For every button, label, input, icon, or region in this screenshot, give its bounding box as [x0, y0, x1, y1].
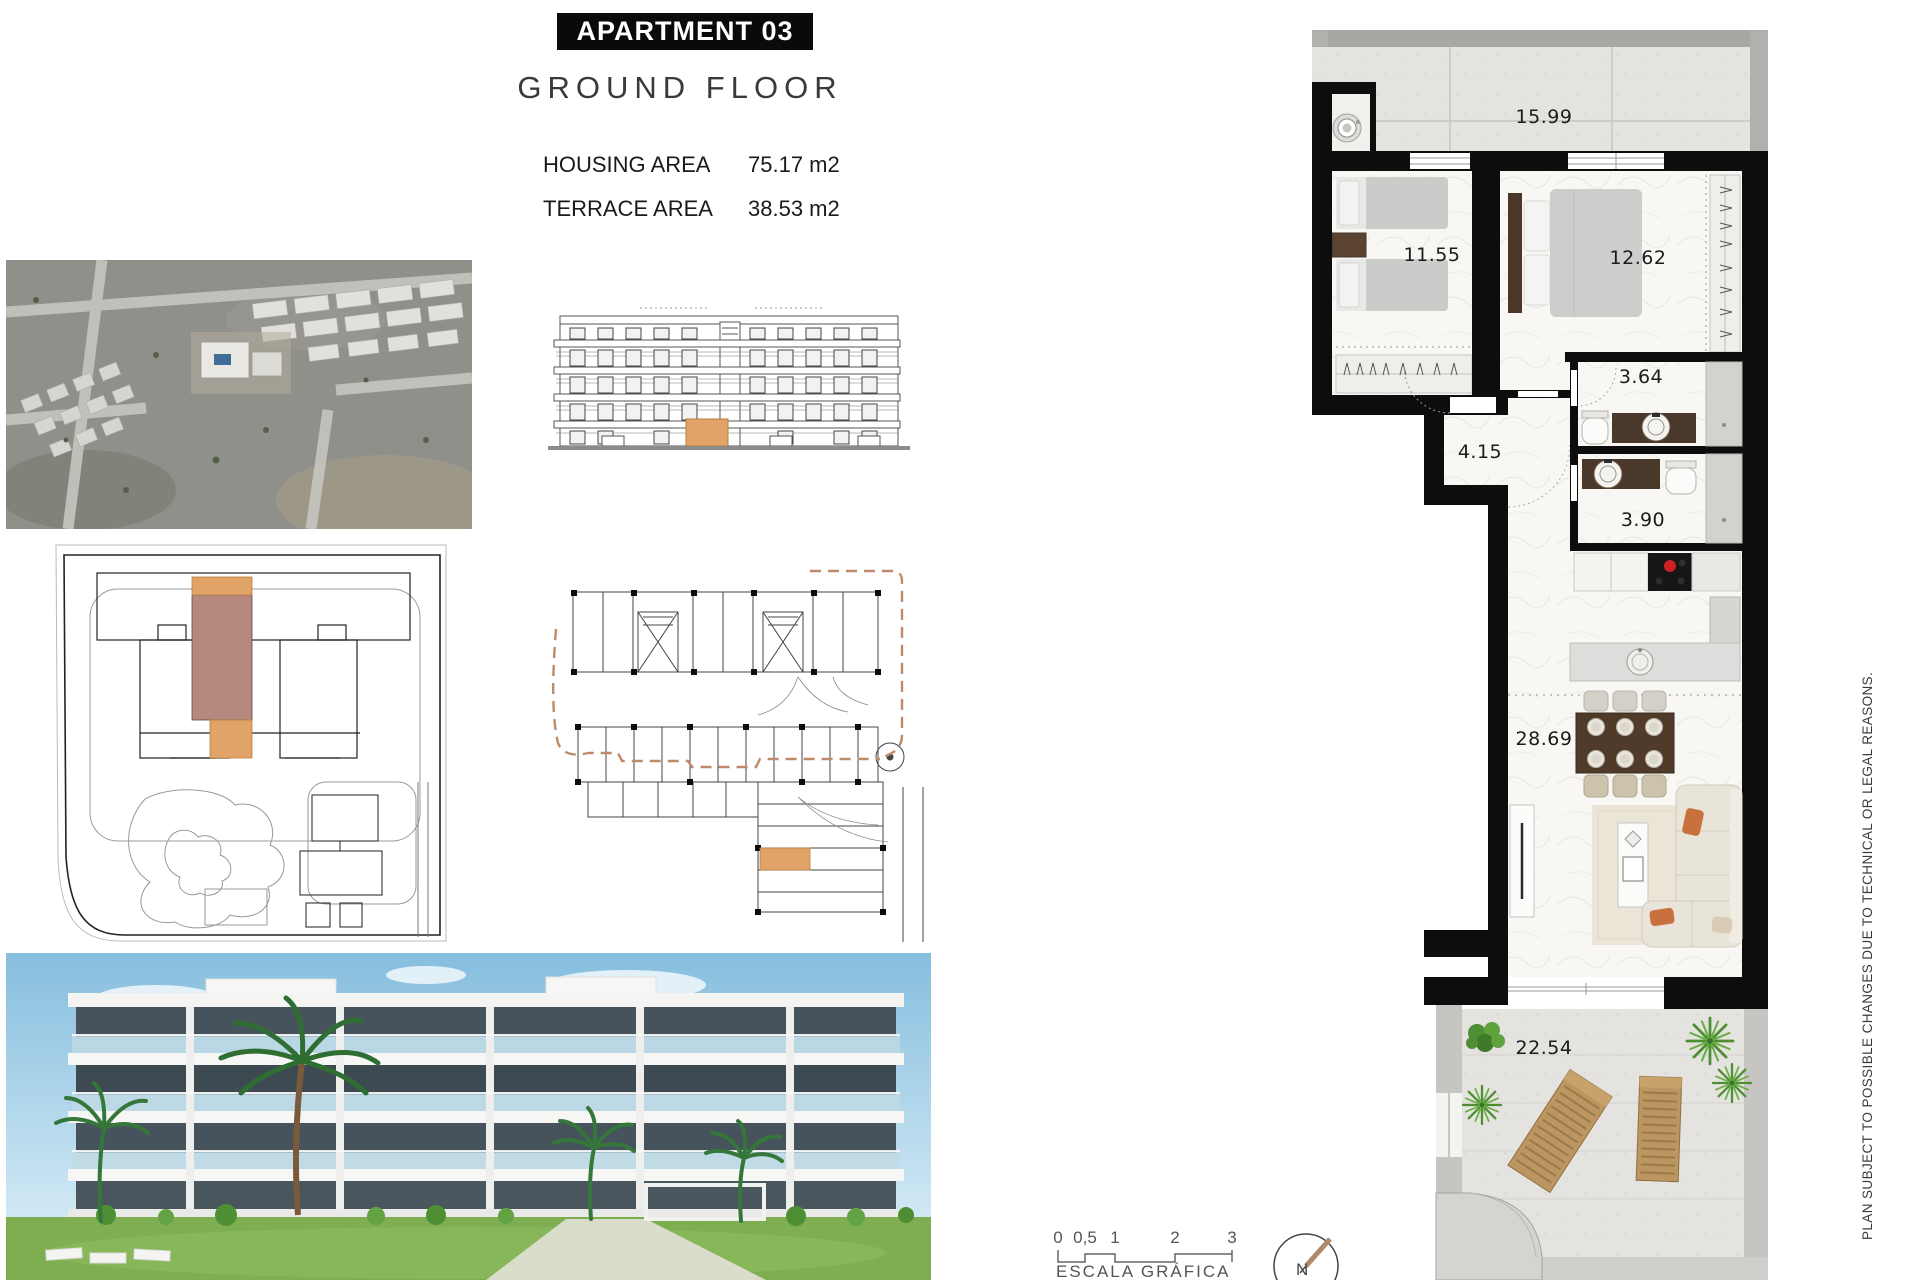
- plant-icon: [1463, 1086, 1501, 1124]
- toilet-icon: [1582, 411, 1608, 444]
- area-summary: HOUSING AREA 75.17 m2 TERRACE AREA 38.53…: [543, 150, 873, 238]
- nightstand: [1332, 233, 1366, 257]
- brochure-sheet: APARTMENT 03 GROUND FLOOR HOUSING AREA 7…: [0, 0, 1920, 1280]
- terrace-area-row: TERRACE AREA 38.53 m2: [543, 194, 873, 224]
- page-title: APARTMENT 03: [557, 13, 813, 50]
- satellite-aerial-image: [6, 260, 472, 529]
- apartment-title: APARTMENT 03: [576, 16, 793, 47]
- washing-machine-icon: [1333, 114, 1361, 142]
- room-label-bathroom-2: 3.90: [1621, 509, 1665, 531]
- toilet-icon: [1666, 461, 1696, 494]
- graphic-scale-bar: 0 0,5 1 2 3 ESCALA GRÁFICA: [1054, 1228, 1264, 1280]
- terrace-top-floor: [1312, 47, 1750, 157]
- room-label-bathroom-1: 3.64: [1619, 366, 1663, 388]
- terrace-area-label: TERRACE AREA: [543, 194, 748, 224]
- highlighted-unit-elevation: [686, 419, 728, 446]
- wardrobe: [1706, 175, 1740, 352]
- coffee-table: [1618, 823, 1648, 907]
- scale-tick: 3: [1227, 1228, 1236, 1248]
- building-elevation-drawing: [540, 300, 915, 458]
- room-label-living-kitchen: 28.69: [1516, 728, 1573, 750]
- room-label-bedroom-1: 11.55: [1404, 244, 1461, 266]
- highlighted-unit-strip: [192, 595, 252, 720]
- scale-tick: 0,5: [1073, 1228, 1097, 1248]
- north-compass-icon: N: [1270, 1230, 1346, 1280]
- sun-lounger: [1636, 1076, 1682, 1181]
- highlighted-parking-space: [760, 848, 810, 870]
- shower: [1706, 362, 1742, 446]
- sink-icon: [1582, 459, 1660, 489]
- room-label-terrace-top: 15.99: [1516, 106, 1573, 128]
- shower: [1706, 454, 1742, 543]
- room-label-hallway: 4.15: [1458, 441, 1502, 463]
- kitchen-island: [1570, 643, 1740, 681]
- scale-tick: 1: [1110, 1228, 1119, 1248]
- housing-area-row: HOUSING AREA 75.17 m2: [543, 150, 873, 180]
- sink-icon: [1627, 649, 1653, 675]
- dining-set: [1576, 691, 1674, 797]
- building-render-image: [6, 953, 931, 1280]
- plant-icon: [1687, 1018, 1733, 1064]
- apartment-floor-plan: 15.99 11.55 12.62 3.64 4.15 3.90 28.69 2…: [1312, 25, 1768, 1280]
- scale-tick: 0: [1053, 1228, 1062, 1248]
- tv-unit: [1510, 805, 1534, 917]
- site-plan-drawing: [50, 537, 452, 947]
- pool-icon: [214, 354, 231, 365]
- sink-icon: [1612, 413, 1696, 443]
- room-label-terrace-bottom: 22.54: [1516, 1037, 1573, 1059]
- scale-tick: 2: [1170, 1228, 1179, 1248]
- room-label-bedroom-2: 12.62: [1610, 247, 1667, 269]
- legal-disclaimer: PLAN SUBJECT TO POSSIBLE CHANGES DUE TO …: [1860, 672, 1875, 1240]
- housing-area-label: HOUSING AREA: [543, 150, 748, 180]
- scale-bar-caption: ESCALA GRÁFICA: [1056, 1262, 1230, 1280]
- north-label: N: [1296, 1260, 1308, 1280]
- plant-icon: [1466, 1022, 1505, 1052]
- highlighted-terrace-bottom: [210, 720, 252, 758]
- cooktop-icon: [1648, 553, 1692, 591]
- housing-area-value: 75.17 m2: [748, 150, 840, 180]
- highlighted-terrace-top: [192, 577, 252, 595]
- terrace-area-value: 38.53 m2: [748, 194, 840, 224]
- overview-floor-plan-drawing: [548, 557, 933, 947]
- plant-icon: [1713, 1064, 1751, 1102]
- floor-subtitle: GROUND FLOOR: [517, 70, 842, 106]
